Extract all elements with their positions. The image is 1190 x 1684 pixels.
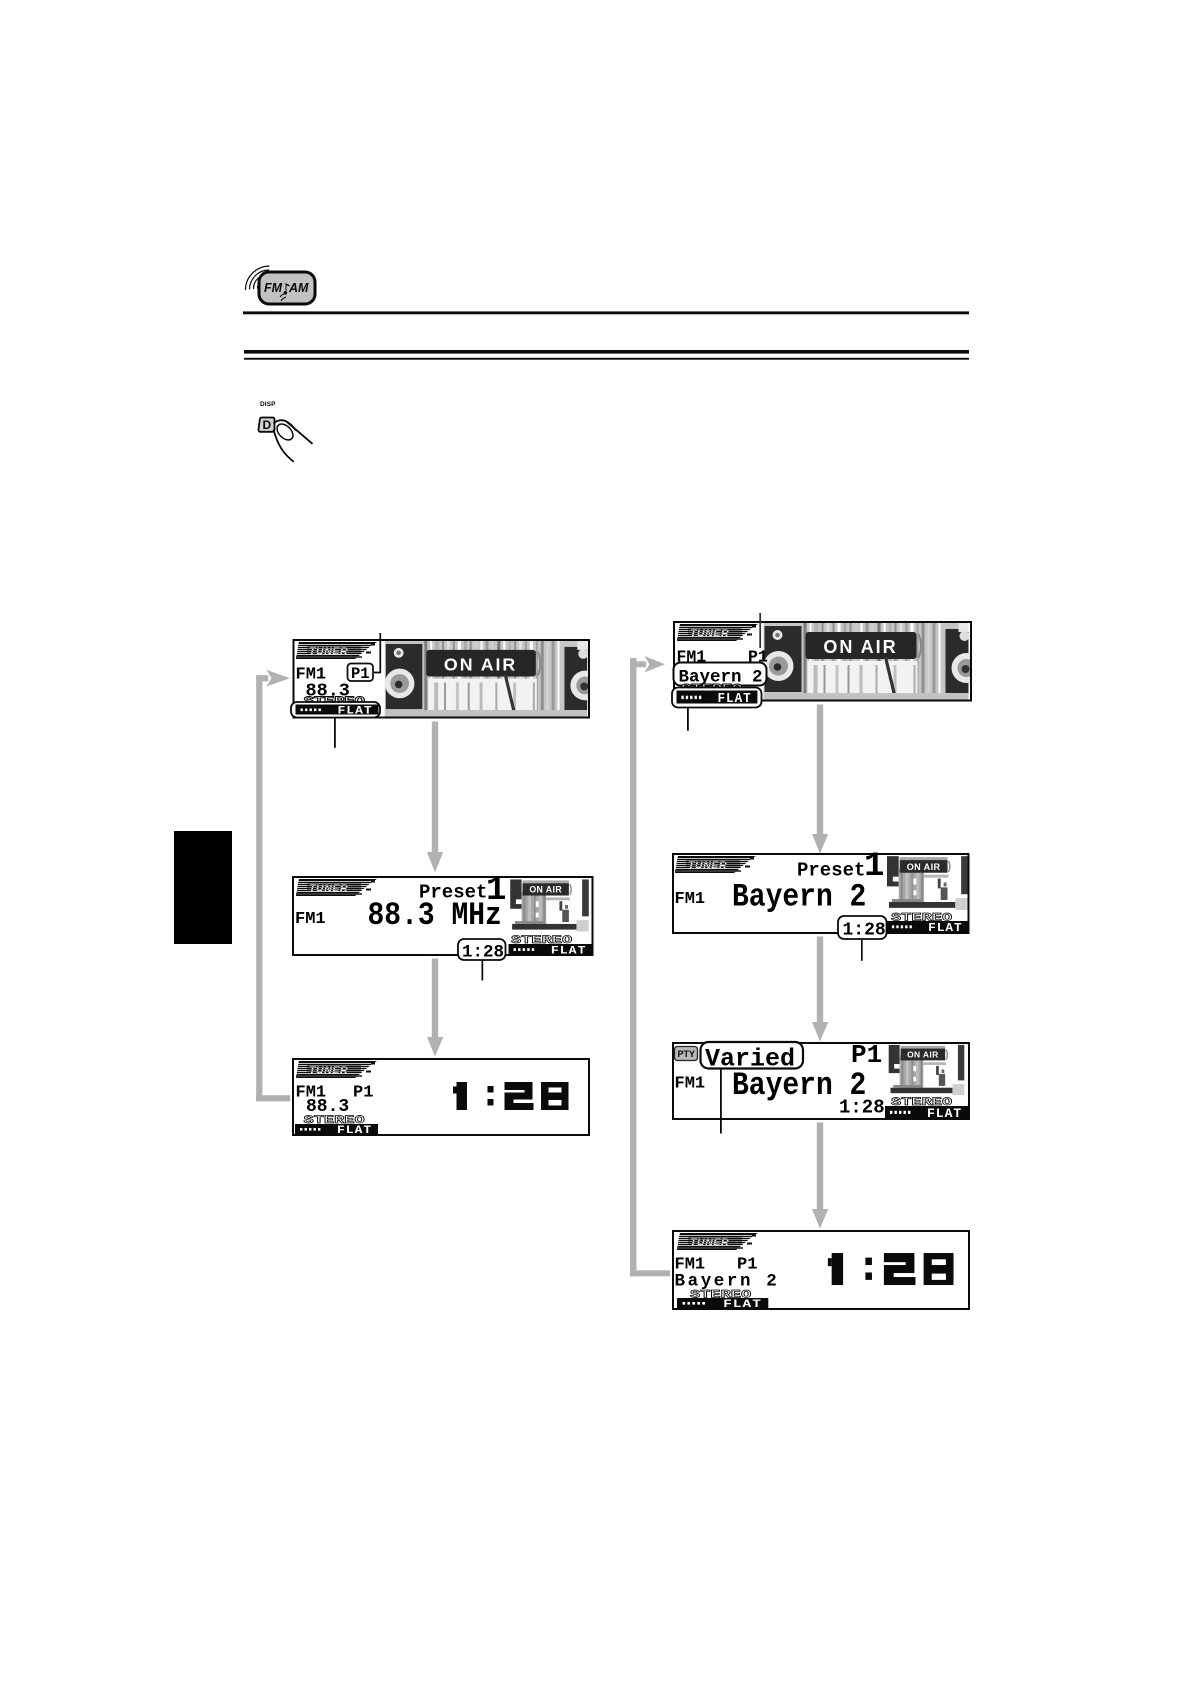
svg-text:PTY: PTY (678, 1049, 696, 1059)
svg-text:AM: AM (288, 281, 309, 295)
svg-text:P1: P1 (351, 665, 370, 683)
svg-text:D: D (263, 418, 272, 432)
svg-text:P1: P1 (851, 1040, 882, 1070)
svg-text:1:28: 1:28 (843, 921, 886, 941)
svg-text:P1: P1 (353, 1084, 373, 1103)
svg-text:1:28: 1:28 (462, 943, 504, 963)
svg-text:1:28: 1:28 (839, 1097, 885, 1119)
svg-text:1: 1 (864, 848, 884, 886)
svg-text:DISP: DISP (260, 401, 276, 408)
svg-text:FM1: FM1 (675, 1075, 706, 1094)
svg-text:88.3 MHz: 88.3 MHz (368, 898, 502, 934)
svg-text:Preset: Preset (797, 860, 865, 882)
svg-text:FM1: FM1 (295, 910, 326, 929)
svg-text:FM1: FM1 (675, 890, 706, 909)
svg-text:Bayern 2: Bayern 2 (732, 880, 866, 916)
svg-text:FM: FM (264, 281, 283, 295)
svg-text:Varied: Varied (705, 1045, 795, 1074)
